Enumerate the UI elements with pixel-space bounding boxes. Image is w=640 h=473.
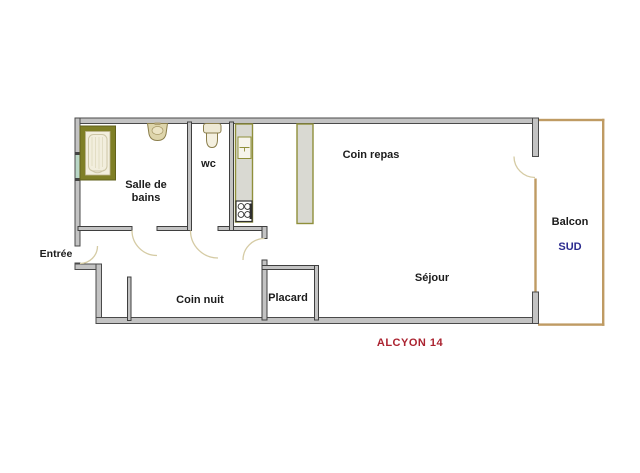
balcony-right-rail bbox=[602, 119, 604, 326]
label-sejour: Séjour bbox=[402, 272, 462, 285]
sejour-door-arc bbox=[243, 239, 265, 261]
wall-hall-c bbox=[218, 227, 265, 231]
counter-strip bbox=[297, 124, 313, 224]
entree-door-arc bbox=[80, 246, 98, 264]
wall-wc-kitchen bbox=[230, 122, 234, 231]
balcony-window-front bbox=[534, 179, 536, 293]
balcony-bottom-rail bbox=[538, 323, 605, 325]
floorplan-drawing bbox=[0, 0, 640, 473]
toilet-icon bbox=[204, 124, 222, 148]
sink-icon bbox=[148, 123, 168, 141]
floorplan-canvas: Salle de bains wc Coin repas Séjour Balc… bbox=[0, 0, 640, 473]
wall-step-vertical bbox=[96, 264, 102, 324]
label-sud: SUD bbox=[545, 241, 595, 254]
label-placard: Placard bbox=[258, 292, 318, 305]
label-wc: wc bbox=[196, 158, 221, 171]
wall-placard-top bbox=[262, 266, 319, 270]
label-coin-nuit: Coin nuit bbox=[170, 294, 230, 307]
label-entree: Entrée bbox=[36, 248, 76, 261]
label-coin-repas: Coin repas bbox=[331, 149, 411, 162]
label-balcon: Balcon bbox=[540, 216, 600, 229]
wall-sejour-door-jamb bbox=[262, 227, 267, 239]
wall-hall-a bbox=[78, 227, 132, 231]
window-cap-top bbox=[75, 152, 80, 155]
plan-title: ALCYON 14 bbox=[360, 337, 460, 350]
label-salle-de-bains: Salle de bains bbox=[115, 179, 177, 205]
wall-coin-nuit-stub bbox=[128, 277, 132, 321]
wall-bath-wc bbox=[188, 122, 192, 231]
balcony-top-rail bbox=[538, 119, 605, 121]
wc-door-arc bbox=[191, 231, 219, 259]
wall-right-lower bbox=[533, 292, 539, 324]
window-glass bbox=[76, 155, 80, 178]
wall-hall-b bbox=[157, 227, 191, 231]
bathroom-door-arc bbox=[132, 231, 157, 256]
bathtub-icon bbox=[80, 126, 116, 180]
bathroom-window bbox=[75, 152, 80, 181]
wall-top bbox=[75, 118, 538, 124]
wall-right-upper bbox=[533, 118, 539, 157]
stove-icon bbox=[236, 201, 252, 222]
fridge-icon bbox=[238, 137, 251, 159]
balcony-door-arc bbox=[514, 157, 535, 178]
window-cap-bottom bbox=[75, 178, 80, 181]
